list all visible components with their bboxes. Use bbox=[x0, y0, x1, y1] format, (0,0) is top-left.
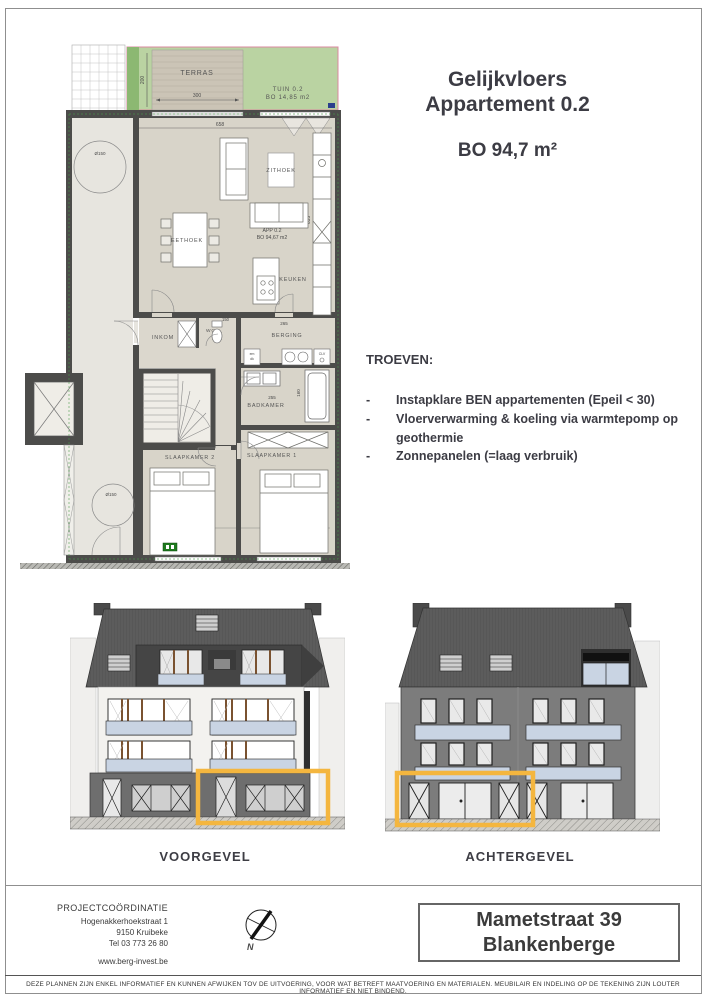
troeven-item: - Instapklare BEN appartementen (Epeil <… bbox=[366, 391, 688, 410]
svg-text:CLV: CLV bbox=[319, 352, 326, 356]
coordination-website: www.berg-invest.be bbox=[50, 957, 168, 966]
berging-label: BERGING bbox=[272, 333, 303, 339]
back-elevation-label: ACHTERGEVEL bbox=[415, 849, 625, 864]
footer-divider bbox=[5, 885, 702, 886]
tuin-area-label: BO 14,85 m2 bbox=[266, 95, 310, 101]
dim-terras-width: 300 bbox=[193, 93, 202, 99]
dim-terras-depth: 200 bbox=[140, 76, 146, 85]
svg-text:265: 265 bbox=[280, 321, 288, 326]
address-street: Mametstraat 39 bbox=[476, 908, 622, 933]
svg-text:255: 255 bbox=[268, 395, 276, 400]
disclaimer-bar: DEZE PLANNEN ZIJN ENKEL INFORMATIEF EN K… bbox=[5, 975, 701, 998]
svg-text:150: 150 bbox=[222, 317, 230, 322]
slaapkamer2-label: SLAAPKAMER 2 bbox=[165, 455, 215, 461]
eethoek-label: EETHOEK bbox=[171, 238, 203, 244]
coordination-phone: Tel 03 773 26 80 bbox=[50, 939, 168, 950]
app-area-label: BO 94,67 m2 bbox=[257, 235, 288, 241]
coordination-street: Hogenakkerhoekstraat 1 bbox=[50, 917, 168, 928]
address-city: Blankenberge bbox=[483, 933, 615, 958]
facade bbox=[98, 687, 310, 773]
zithoek-label: ZITHOEK bbox=[266, 168, 295, 174]
troeven-item: - Zonnepanelen (=laag verbruik) bbox=[366, 447, 688, 466]
project-address-box: Mametstraat 39 Blankenberge bbox=[418, 903, 680, 962]
troeven-heading: TROEVEN: bbox=[366, 352, 688, 367]
title-block: Gelijkvloers Appartement 0.2 BO 94,7 m² bbox=[390, 68, 625, 162]
svg-text:dk: dk bbox=[250, 357, 254, 361]
inkom-label: INKOM bbox=[152, 335, 174, 341]
project-coordination: PROJECTCOÖRDINATIE Hogenakkerhoekstraat … bbox=[50, 903, 168, 966]
troeven-section: TROEVEN: - Instapklare BEN appartementen… bbox=[366, 352, 688, 466]
bullet-dash: - bbox=[366, 410, 396, 448]
slaapkamer1-label: SLAAPKAMER 1 bbox=[247, 453, 297, 459]
garden-area: TERRAS 300 200 TUIN 0.2 BO 14,85 m2 bbox=[72, 45, 338, 112]
back-elevation bbox=[385, 603, 660, 843]
compass-icon: N bbox=[238, 905, 284, 957]
app-label: APP 0.2 bbox=[263, 228, 282, 234]
bullet-dash: - bbox=[366, 391, 396, 410]
page-title-line1: Gelijkvloers bbox=[390, 68, 625, 93]
compass-north-label: N bbox=[247, 942, 254, 952]
front-elevation bbox=[70, 603, 345, 843]
floor-plan: TERRAS 300 200 TUIN 0.2 BO 14,85 m2 bbox=[20, 15, 350, 570]
circle-label-top: Ø150 bbox=[94, 151, 106, 156]
coordination-city: 9150 Kruibeke bbox=[50, 928, 168, 939]
badkamer-label: BADKAMER bbox=[247, 403, 284, 409]
ground-floor bbox=[409, 783, 613, 819]
troeven-item: - Vloerverwarming & koeling via warmtepo… bbox=[366, 410, 688, 448]
page-title-area: BO 94,7 m² bbox=[390, 140, 625, 162]
roof bbox=[399, 603, 647, 687]
terras-label: TERRAS bbox=[180, 70, 213, 77]
circle-label-bottom: Ø150 bbox=[105, 492, 117, 497]
svg-text:658: 658 bbox=[216, 122, 225, 128]
svg-text:em: em bbox=[250, 352, 255, 356]
tuin-label: TUIN 0.2 bbox=[273, 87, 303, 93]
svg-text:160: 160 bbox=[296, 389, 301, 397]
roof bbox=[86, 603, 329, 687]
bullet-dash: - bbox=[366, 447, 396, 466]
staircase bbox=[141, 371, 213, 445]
keuken-label: KEUKEN bbox=[279, 277, 306, 283]
front-elevation-label: VOORGEVEL bbox=[100, 849, 310, 864]
page-title-line2: Appartement 0.2 bbox=[390, 93, 625, 118]
coordination-heading: PROJECTCOÖRDINATIE bbox=[50, 903, 168, 913]
